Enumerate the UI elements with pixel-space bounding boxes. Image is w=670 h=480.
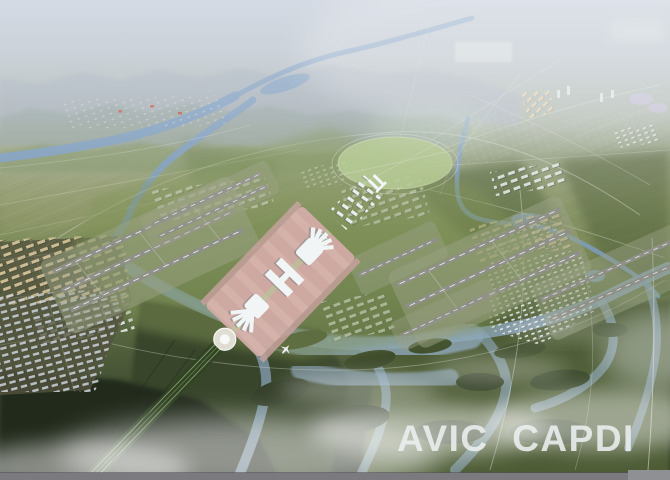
- aerial-rendering-viewport: AVIC CAPDI: [0, 0, 670, 480]
- bottom-bar-strip: [0, 473, 670, 480]
- watermark-text: AVIC CAPDI: [397, 418, 635, 459]
- airport-city-rendering: AVIC CAPDI: [0, 0, 670, 480]
- bottom-bar-right-segment: [628, 470, 670, 480]
